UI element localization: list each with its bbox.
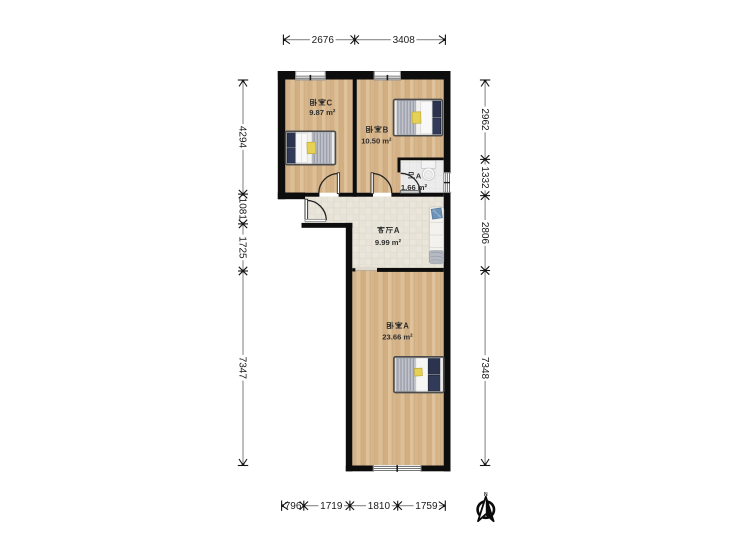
svg-text:A: A — [416, 171, 422, 180]
svg-text:B: B — [383, 126, 389, 135]
svg-text:2806: 2806 — [479, 222, 490, 245]
svg-text:1081: 1081 — [237, 198, 248, 221]
svg-text:10.50 m²: 10.50 m² — [361, 136, 392, 145]
svg-text:9.99 m²: 9.99 m² — [375, 238, 402, 247]
svg-text:A: A — [394, 226, 400, 235]
svg-text:1725: 1725 — [237, 236, 248, 259]
svg-text:N: N — [484, 492, 488, 498]
svg-text:C: C — [327, 99, 333, 108]
svg-text:1810: 1810 — [368, 501, 391, 512]
svg-text:9.87 m²: 9.87 m² — [309, 108, 336, 117]
svg-text:7347: 7347 — [237, 357, 248, 380]
svg-text:7348: 7348 — [479, 357, 490, 380]
svg-text:1759: 1759 — [415, 501, 438, 512]
svg-text:2676: 2676 — [312, 35, 335, 46]
svg-text:1332: 1332 — [479, 166, 490, 189]
svg-text:2962: 2962 — [479, 108, 490, 131]
svg-text:4294: 4294 — [237, 126, 248, 149]
svg-text:3408: 3408 — [393, 35, 416, 46]
svg-text:A: A — [403, 322, 409, 331]
svg-text:23.66 m²: 23.66 m² — [382, 332, 413, 341]
svg-text:1.66 m²: 1.66 m² — [401, 183, 428, 192]
svg-text:1719: 1719 — [320, 501, 343, 512]
